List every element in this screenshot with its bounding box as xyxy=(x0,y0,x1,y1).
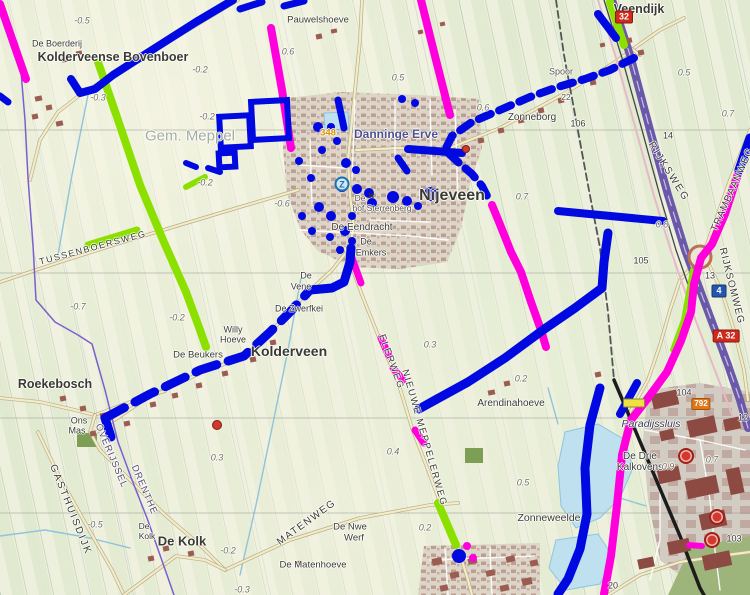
canal xyxy=(58,95,88,255)
building xyxy=(600,43,606,48)
route-segment-m xyxy=(0,4,26,79)
route-dot-b xyxy=(295,157,303,165)
route-dot-b xyxy=(326,211,336,221)
map-overlay-svg xyxy=(0,0,750,595)
industrial-building xyxy=(637,556,655,569)
route-dot-b xyxy=(414,202,422,210)
canal xyxy=(240,272,302,575)
route-segment-b xyxy=(284,1,304,6)
building xyxy=(60,395,67,401)
area-texture xyxy=(418,543,540,595)
road-casing xyxy=(30,0,238,180)
building xyxy=(595,371,602,377)
route-dot-b xyxy=(307,174,315,182)
route-dot-b xyxy=(352,166,360,174)
building xyxy=(196,382,203,388)
area-green-square-east xyxy=(465,448,483,463)
building xyxy=(46,104,53,110)
route-dot-b xyxy=(387,191,399,203)
route-dot-b xyxy=(424,187,438,201)
route-dot-b xyxy=(327,123,335,131)
building xyxy=(172,392,179,398)
route-dot-b xyxy=(452,549,466,563)
railway-line xyxy=(604,0,692,296)
building xyxy=(331,28,338,33)
route-dot-b xyxy=(398,95,406,103)
route-dot-b xyxy=(336,246,344,254)
route-dot-b xyxy=(308,227,316,235)
route-dot-b xyxy=(313,122,323,132)
route-highlight-rect xyxy=(219,153,236,168)
map-canvas[interactable]: Kolderveense BovenboerVeendijkNijeveenKo… xyxy=(0,0,750,595)
building xyxy=(250,356,257,362)
canal xyxy=(620,498,646,506)
route-segment-b xyxy=(408,149,462,153)
route-segment-m xyxy=(381,338,389,356)
route-dot-b xyxy=(326,233,334,241)
province-boundary xyxy=(20,60,174,595)
route-segment-b xyxy=(186,163,196,167)
route-segment-b xyxy=(0,96,8,102)
route-dot-b xyxy=(402,196,412,206)
building xyxy=(163,545,170,551)
building xyxy=(418,30,424,35)
route-dot-b xyxy=(298,212,306,220)
building xyxy=(150,401,157,407)
building xyxy=(76,50,83,55)
route-segment-b xyxy=(739,138,750,170)
route-segment-b xyxy=(105,290,310,418)
building xyxy=(440,22,446,27)
canal xyxy=(0,530,130,548)
route-segment-b xyxy=(71,0,233,93)
road-minor xyxy=(30,0,238,180)
building xyxy=(62,56,69,62)
building xyxy=(148,555,155,561)
route-dot-b xyxy=(340,226,350,236)
route-segment-b xyxy=(558,211,663,221)
route-dot-b xyxy=(341,158,351,168)
building xyxy=(316,33,323,39)
route-segment-b xyxy=(105,418,111,437)
road-minor xyxy=(38,432,124,595)
building xyxy=(488,389,496,395)
route-dot-b xyxy=(411,99,419,107)
route-dot-b xyxy=(336,180,348,192)
route-segment-b xyxy=(240,2,262,9)
route-dot-b xyxy=(364,188,374,198)
route-dot-m xyxy=(469,554,477,562)
route-segment-g xyxy=(88,230,137,245)
building xyxy=(80,405,87,411)
route-dot-m xyxy=(463,542,471,550)
road-minor xyxy=(124,556,225,595)
route-dot-b xyxy=(352,184,362,194)
building xyxy=(296,560,303,566)
route-dot-b xyxy=(367,198,377,208)
building xyxy=(504,380,511,386)
building xyxy=(188,550,195,556)
route-dot-b xyxy=(314,202,324,212)
route-dot-b xyxy=(318,146,326,154)
canal xyxy=(548,388,558,424)
building xyxy=(270,339,277,345)
route-segment-g xyxy=(186,177,205,187)
building xyxy=(124,420,131,426)
route-highlight-rect xyxy=(219,115,251,148)
route-dot-b xyxy=(348,237,356,245)
building xyxy=(638,49,645,55)
route-segment-m xyxy=(492,205,546,347)
route-segment-g xyxy=(438,503,456,545)
route-dot-b xyxy=(333,137,341,145)
route-dot-b xyxy=(348,212,356,220)
route-segment-g xyxy=(98,62,206,347)
tramline xyxy=(556,0,614,380)
building xyxy=(35,95,43,101)
building xyxy=(56,120,64,126)
route-segment-m xyxy=(689,545,702,546)
building xyxy=(32,113,39,119)
building xyxy=(222,370,229,376)
